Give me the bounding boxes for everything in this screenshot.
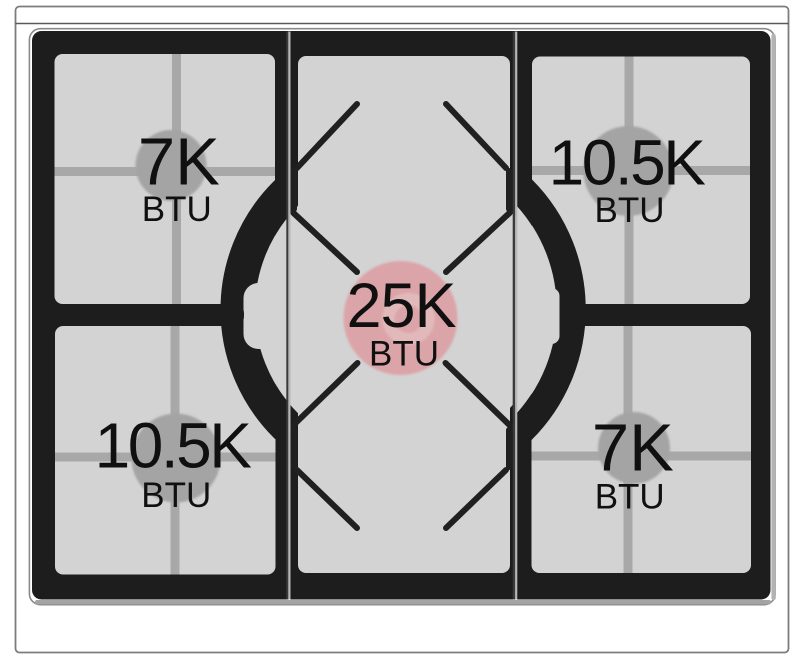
svg-text:BTU: BTU	[141, 476, 211, 515]
svg-text:BTU: BTU	[369, 334, 439, 373]
svg-text:25K: 25K	[346, 271, 456, 341]
svg-text:10.5K: 10.5K	[549, 127, 706, 199]
svg-text:7K: 7K	[138, 125, 220, 200]
svg-text:BTU: BTU	[595, 478, 665, 517]
svg-text:BTU: BTU	[595, 191, 665, 230]
svg-text:7K: 7K	[592, 411, 674, 486]
svg-text:10.5K: 10.5K	[95, 410, 252, 482]
svg-text:BTU: BTU	[142, 190, 212, 229]
